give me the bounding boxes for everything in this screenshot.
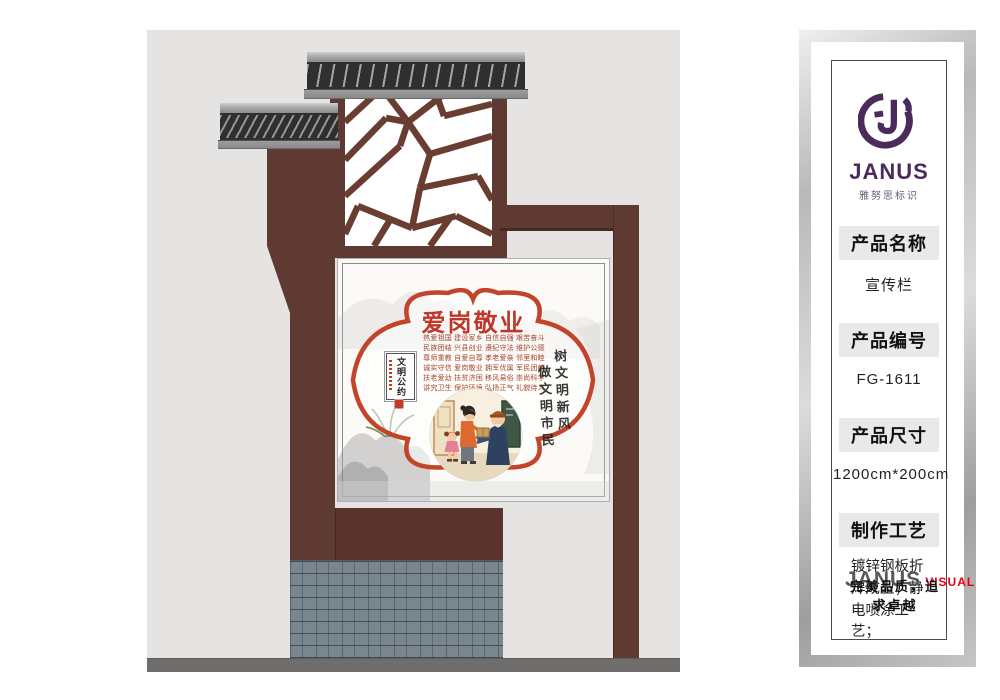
- cartoon-vignette: [428, 387, 524, 483]
- field-value-product-size: 1200cm*200cm: [833, 466, 945, 483]
- small-roof-eave: [218, 140, 340, 149]
- product-card-frame: JANUS 雅努思标识 产品名称 宣传栏 产品编号 FG-1611 产品尺寸 1…: [799, 30, 976, 667]
- bulletin-sign-board: 爱岗敬业 热爱祖国 建设家乡 自信自强 艰苦奋斗 民族团结 兴县创业 遵纪守法 …: [337, 258, 610, 502]
- sign-title: 爱岗敬业: [338, 303, 609, 338]
- field-label-product-size: 产品尺寸: [839, 418, 939, 452]
- left-column: [265, 143, 337, 561]
- brand-name: JANUS: [833, 159, 945, 185]
- design-proof-page: 爱岗敬业 热爱祖国 建设家乡 自信自强 艰苦奋斗 民族团结 兴县创业 遵纪守法 …: [0, 0, 1000, 700]
- field-value-product-code: FG-1611: [833, 371, 945, 388]
- convention-row: 热爱祖国 建设家乡 自信自强 艰苦奋斗: [396, 334, 572, 344]
- red-seal-stamp: [394, 399, 404, 409]
- brand-subtitle: 雅努思标识: [833, 187, 945, 202]
- field-label-product-name: 产品名称: [839, 226, 939, 260]
- under-sign-panel: [335, 508, 503, 560]
- small-roof-tiles: [220, 113, 338, 140]
- main-roof-eave: [304, 89, 528, 99]
- product-card-border: JANUS 雅努思标识 产品名称 宣传栏 产品编号 FG-1611 产品尺寸 1…: [831, 60, 947, 640]
- footer-slogan: 完美品质，追求卓越: [845, 576, 945, 614]
- lattice-window: [330, 88, 507, 258]
- field-label-process: 制作工艺: [839, 513, 939, 547]
- product-card: JANUS 雅努思标识 产品名称 宣传栏 产品编号 FG-1611 产品尺寸 1…: [811, 42, 964, 655]
- brand-logo: JANUS 雅努思标识: [833, 90, 945, 202]
- field-value-product-name: 宣传栏: [833, 274, 945, 295]
- convention-row: 民族团结 兴县创业 遵纪守法 维护公德: [396, 344, 572, 354]
- main-roof-tiles: [307, 62, 525, 89]
- field-label-product-code: 产品编号: [839, 323, 939, 357]
- red-annotation-strip: [389, 360, 392, 390]
- render-canvas: 爱岗敬业 热爱祖国 建设家乡 自信自强 艰苦奋斗 民族团结 兴县创业 遵纪守法 …: [147, 30, 680, 671]
- ground-strip: [147, 658, 680, 672]
- civility-pact-text: 文明公约: [396, 357, 405, 397]
- brick-base: [290, 560, 503, 659]
- janus-logo-icon: [858, 90, 920, 152]
- civility-pact-box: 文明公约: [386, 353, 415, 400]
- convention-row: 尊师重教 自爱自尊 孝老爱亲 邻里和睦: [396, 354, 572, 364]
- right-post: [613, 205, 639, 660]
